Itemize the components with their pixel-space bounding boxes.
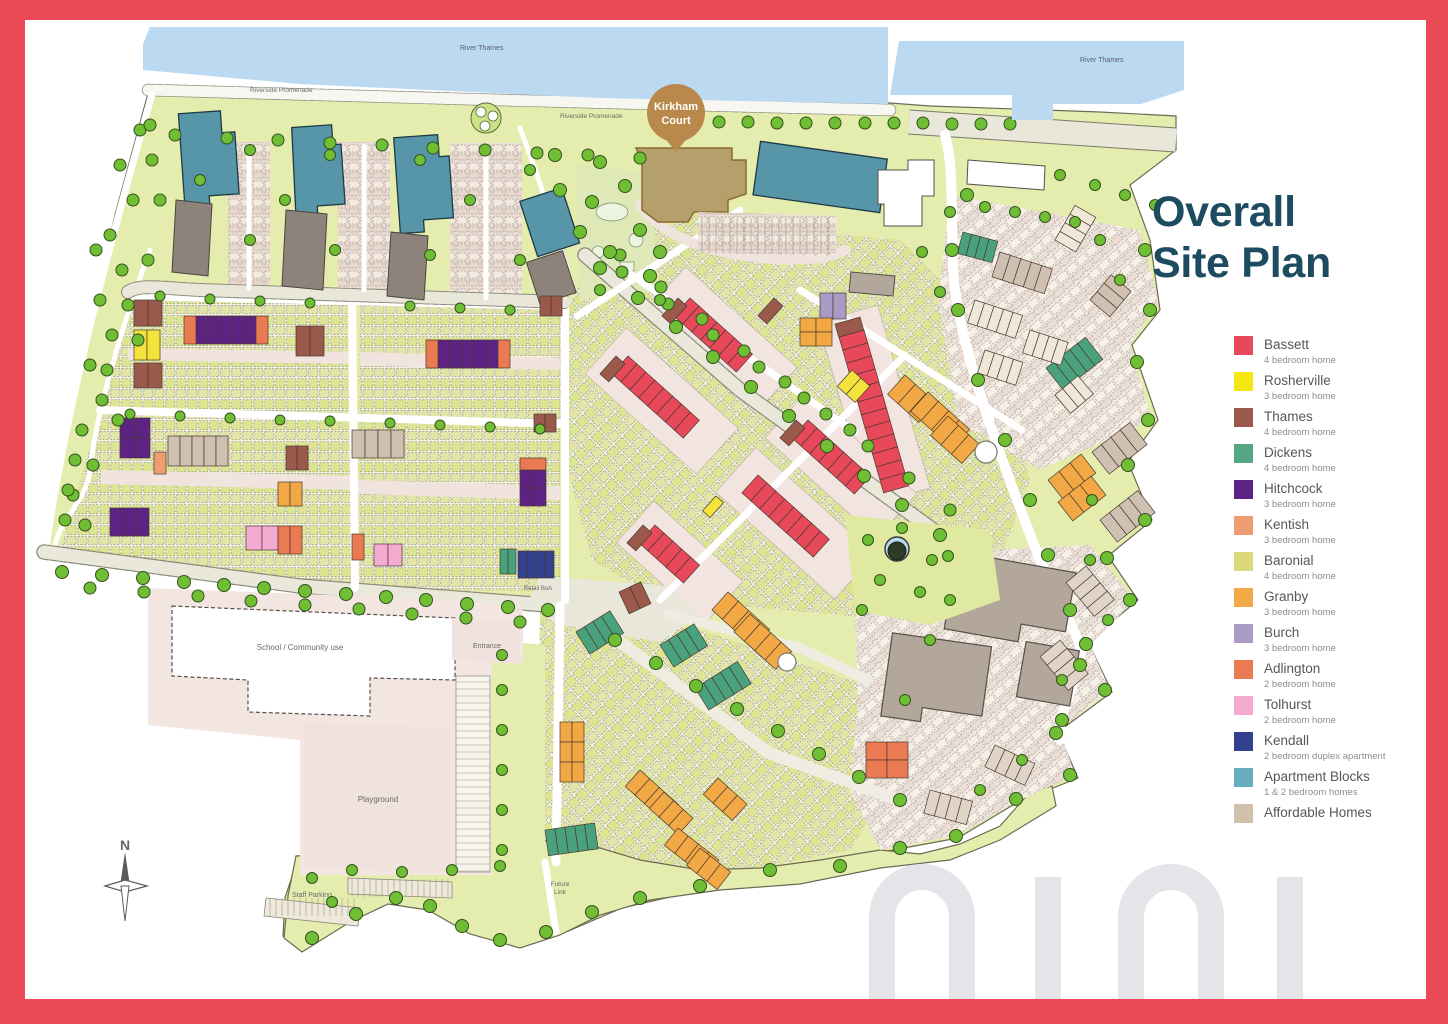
- svg-text:4 bedroom home: 4 bedroom home: [1264, 463, 1336, 474]
- svg-text:Kendall: Kendall: [1264, 733, 1309, 748]
- svg-text:Dickens: Dickens: [1264, 445, 1312, 460]
- svg-text:3 bedroom home: 3 bedroom home: [1264, 499, 1336, 510]
- svg-text:Hitchcock: Hitchcock: [1264, 481, 1323, 496]
- svg-text:3 bedroom home: 3 bedroom home: [1264, 535, 1336, 546]
- svg-text:2 bedroom duplex apartment: 2 bedroom duplex apartment: [1264, 751, 1386, 762]
- svg-text:4 bedroom home: 4 bedroom home: [1264, 571, 1336, 582]
- svg-text:Baronial: Baronial: [1264, 553, 1314, 568]
- svg-text:N: N: [120, 837, 130, 853]
- svg-text:Court: Court: [661, 115, 691, 127]
- svg-text:Adlington: Adlington: [1264, 661, 1320, 676]
- svg-text:Apartment Blocks: Apartment Blocks: [1264, 769, 1370, 784]
- svg-text:River Thames: River Thames: [1080, 57, 1124, 64]
- svg-text:Staff Parking: Staff Parking: [292, 892, 332, 899]
- svg-text:Kentish: Kentish: [1264, 517, 1309, 532]
- svg-text:Tolhurst: Tolhurst: [1264, 697, 1312, 712]
- svg-text:Bassett: Bassett: [1264, 337, 1309, 352]
- svg-text:Link: Link: [554, 889, 567, 896]
- svg-text:4 bedroom home: 4 bedroom home: [1264, 427, 1336, 438]
- svg-text:Thames: Thames: [1264, 409, 1313, 424]
- svg-text:Rosherville: Rosherville: [1264, 373, 1331, 388]
- svg-text:Burch: Burch: [1264, 625, 1299, 640]
- svg-text:2 bedroom home: 2 bedroom home: [1264, 679, 1336, 690]
- svg-text:Site Plan: Site Plan: [1152, 239, 1331, 287]
- svg-text:Future: Future: [551, 881, 570, 888]
- svg-text:Playground: Playground: [358, 795, 398, 804]
- svg-text:School / Community use: School / Community use: [257, 643, 344, 652]
- svg-text:3 bedroom home: 3 bedroom home: [1264, 391, 1336, 402]
- svg-text:Overall: Overall: [1152, 188, 1296, 236]
- svg-text:2 bedroom home: 2 bedroom home: [1264, 715, 1336, 726]
- svg-text:Granby: Granby: [1264, 589, 1309, 604]
- svg-text:3 bedroom home: 3 bedroom home: [1264, 643, 1336, 654]
- svg-text:Affordable Homes: Affordable Homes: [1264, 805, 1372, 820]
- svg-text:River Thames: River Thames: [460, 45, 504, 52]
- svg-text:Riverside Promenade: Riverside Promenade: [560, 113, 623, 120]
- svg-text:4 bedroom home: 4 bedroom home: [1264, 355, 1336, 366]
- svg-text:1 & 2 bedroom homes: 1 & 2 bedroom homes: [1264, 787, 1358, 798]
- svg-text:3 bedroom home: 3 bedroom home: [1264, 607, 1336, 618]
- svg-text:Entrance: Entrance: [473, 643, 501, 650]
- svg-text:Riverside Promenade: Riverside Promenade: [250, 87, 313, 94]
- svg-text:Kirkham: Kirkham: [654, 101, 698, 113]
- svg-text:Retail BoA: Retail BoA: [524, 586, 552, 592]
